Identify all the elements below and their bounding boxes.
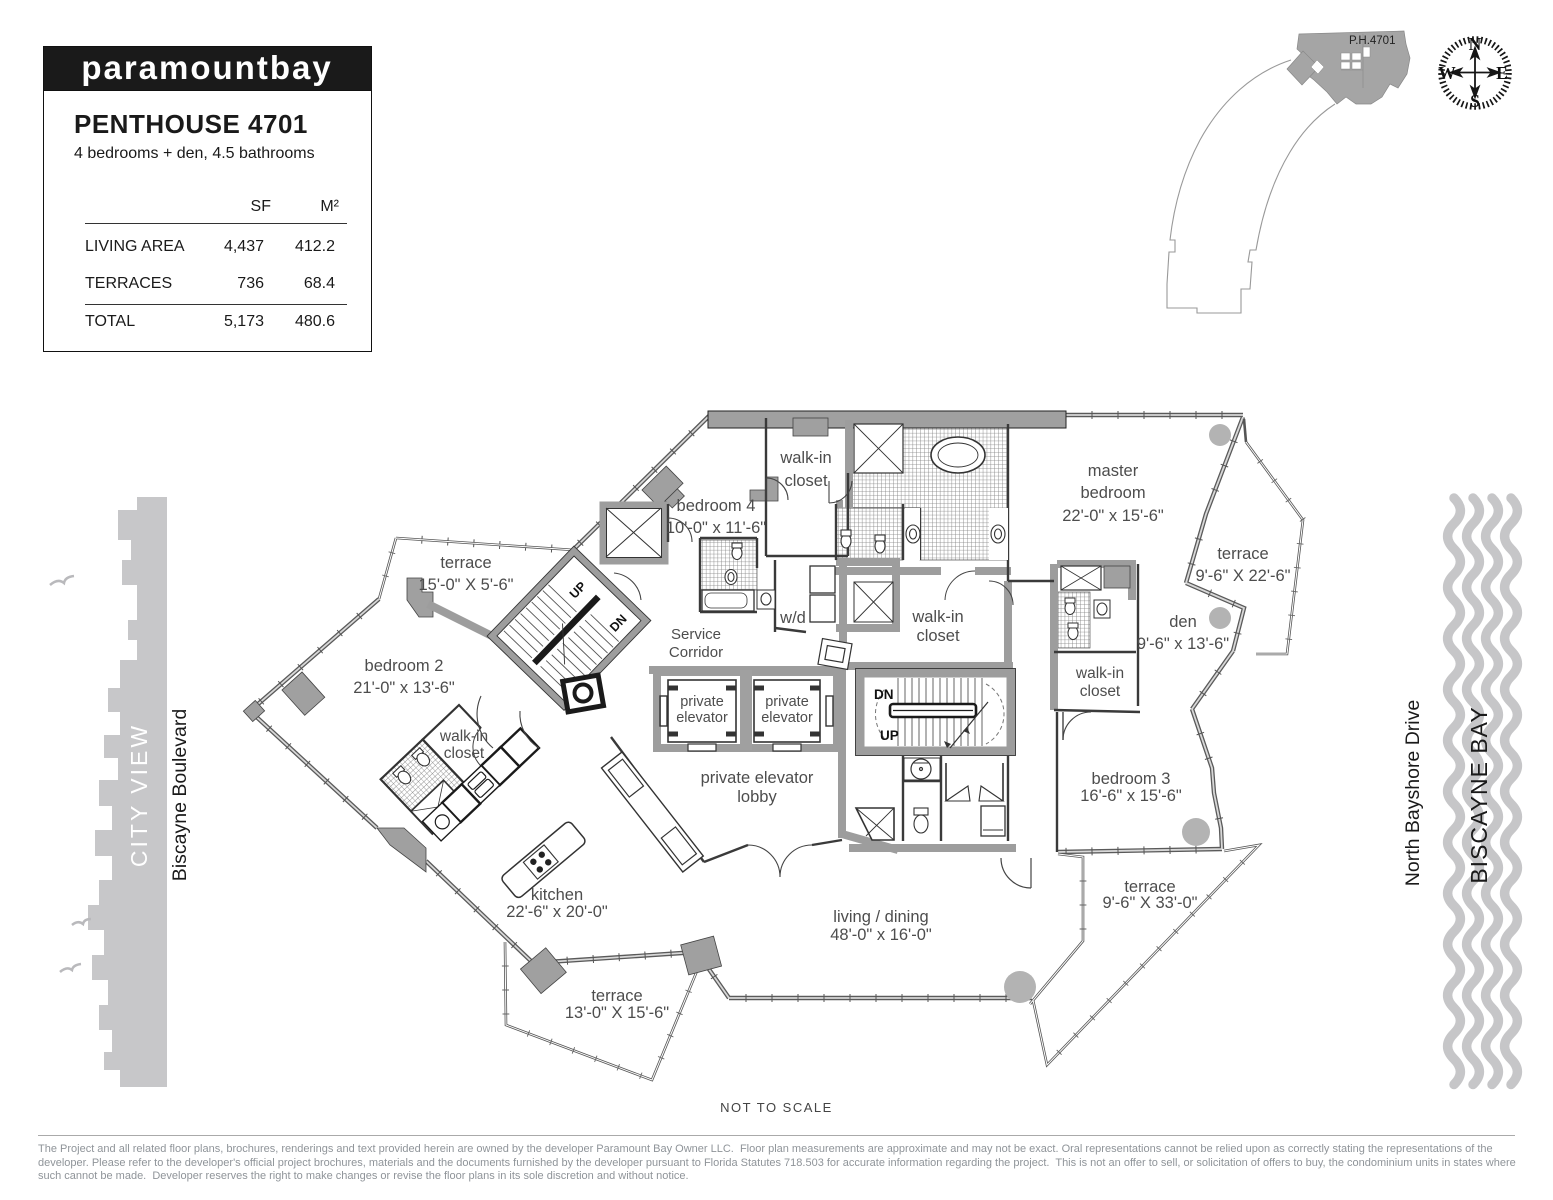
svg-text:bedroom 4: bedroom 4 [677, 497, 756, 515]
svg-text:DN: DN [874, 687, 894, 702]
svg-text:UP: UP [880, 728, 899, 743]
svg-text:private: private [765, 694, 809, 710]
svg-text:w/d: w/d [779, 609, 806, 627]
svg-text:terrace: terrace [440, 554, 491, 572]
svg-text:closet: closet [916, 627, 960, 645]
svg-text:walk-in: walk-in [439, 728, 488, 745]
svg-text:den: den [1169, 613, 1197, 631]
svg-text:P.H.4701: P.H.4701 [1349, 35, 1395, 47]
svg-text:kitchen: kitchen [531, 886, 583, 904]
svg-text:elevator: elevator [761, 710, 813, 726]
svg-text:bedroom: bedroom [1080, 484, 1145, 502]
svg-text:elevator: elevator [676, 710, 728, 726]
svg-text:48'-0" x 16'-0": 48'-0" x 16'-0" [830, 926, 932, 944]
svg-text:Biscayne Boulevard: Biscayne Boulevard [169, 709, 191, 881]
svg-text:16'-6" x 15'-6": 16'-6" x 15'-6" [1080, 787, 1182, 805]
svg-text:22'-6" x 20'-0": 22'-6" x 20'-0" [506, 903, 608, 921]
svg-text:closet: closet [1080, 683, 1121, 700]
svg-text:Corridor: Corridor [669, 644, 723, 661]
svg-text:9'-6" X 22'-6": 9'-6" X 22'-6" [1195, 567, 1290, 585]
svg-text:9'-6" X 33'-0": 9'-6" X 33'-0" [1102, 894, 1197, 912]
svg-text:E: E [1496, 63, 1508, 83]
svg-text:N: N [1469, 34, 1482, 54]
svg-text:9'-6" x 13'-6": 9'-6" x 13'-6" [1137, 635, 1229, 653]
svg-text:closet: closet [444, 745, 485, 762]
svg-text:10'-0" x 11'-6": 10'-0" x 11'-6" [666, 519, 766, 537]
svg-text:bedroom 3: bedroom 3 [1092, 770, 1171, 788]
svg-text:Service: Service [671, 626, 721, 643]
svg-text:22'-0" x 15'-6": 22'-0" x 15'-6" [1062, 507, 1164, 525]
svg-text:walk-in: walk-in [779, 449, 831, 467]
svg-text:walk-in: walk-in [1075, 665, 1124, 682]
svg-text:CITY VIEW: CITY VIEW [126, 723, 152, 867]
svg-text:15'-0" X 5'-6": 15'-0" X 5'-6" [418, 576, 513, 594]
svg-text:13'-0" X 15'-6": 13'-0" X 15'-6" [565, 1004, 669, 1022]
svg-text:private: private [680, 694, 724, 710]
svg-text:walk-in: walk-in [911, 608, 963, 626]
svg-text:21'-0" x 13'-6": 21'-0" x 13'-6" [353, 679, 455, 697]
svg-text:lobby: lobby [737, 788, 777, 806]
svg-text:bedroom 2: bedroom 2 [365, 657, 444, 675]
svg-text:BISCAYNE BAY: BISCAYNE BAY [1466, 706, 1492, 883]
svg-text:private elevator: private elevator [701, 769, 814, 787]
svg-text:S: S [1470, 91, 1480, 111]
svg-text:terrace: terrace [591, 987, 642, 1005]
svg-text:living / dining: living / dining [833, 908, 928, 926]
svg-text:closet: closet [784, 472, 828, 490]
svg-text:master: master [1088, 462, 1139, 480]
svg-text:terrace: terrace [1217, 545, 1268, 563]
svg-text:W: W [1438, 63, 1456, 83]
svg-text:North Bayshore Drive: North Bayshore Drive [1402, 700, 1424, 886]
